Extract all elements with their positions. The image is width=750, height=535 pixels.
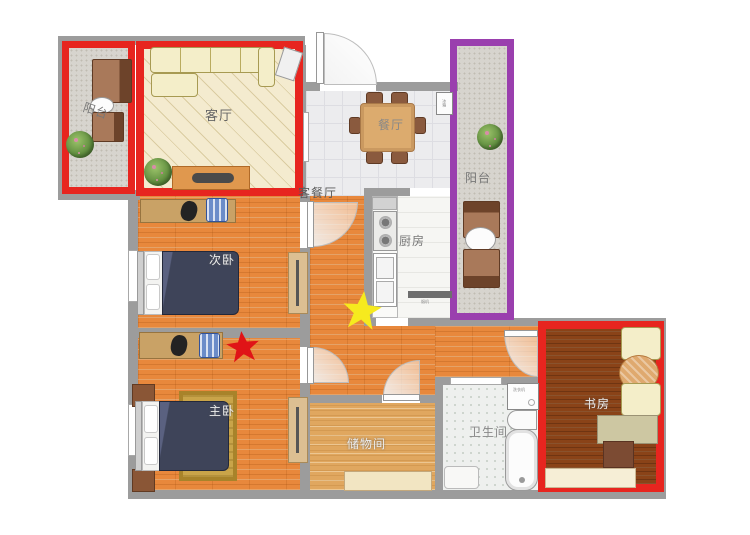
plant	[66, 131, 94, 158]
study-chair	[603, 441, 634, 468]
door-leaf	[307, 347, 314, 384]
armchair	[621, 383, 661, 416]
plant	[144, 158, 172, 186]
burner	[379, 234, 392, 247]
kitchen-opening	[376, 318, 408, 326]
window	[303, 112, 309, 162]
sink-basin	[376, 281, 394, 303]
wall	[376, 82, 458, 91]
dining-chair	[414, 117, 426, 134]
bathroom-label: 卫生间	[469, 423, 508, 440]
storage-cabinet	[344, 471, 432, 491]
kitchen-opening	[410, 188, 452, 196]
bathtub-drain	[519, 477, 525, 483]
blue-chair	[206, 198, 228, 222]
master-bedroom-label: 主卧	[209, 402, 235, 419]
nightstand	[132, 469, 155, 492]
wall	[300, 395, 443, 403]
study-cabinet	[545, 468, 636, 488]
pillow	[146, 254, 160, 280]
sofa-chaise	[151, 73, 198, 97]
balcony-right-label: 阳台	[465, 169, 491, 186]
sofa	[150, 47, 274, 73]
bathroom-sink	[507, 410, 537, 430]
dining-chair	[391, 151, 408, 164]
blue-chair	[199, 333, 220, 358]
entry-door-leaf	[316, 32, 324, 84]
kitchen-label: 厨房	[399, 232, 425, 249]
range-hood-label: 烟机	[421, 301, 429, 305]
fridge: 冰箱	[436, 92, 453, 115]
dining-room-label: 餐厅	[378, 116, 404, 133]
pillow	[146, 284, 160, 310]
balcony-chair	[463, 249, 500, 288]
floor-plan: 阳台 客厅 餐厅 冰箱 阳台 烟机 厨房 次卧	[0, 0, 750, 535]
wardrobe-handle	[296, 407, 299, 453]
living-dining-label: 客餐厅	[298, 184, 337, 201]
toilet	[444, 466, 479, 489]
tv	[192, 173, 234, 183]
bathroom-sliding-door	[450, 377, 502, 385]
study-label: 书房	[584, 395, 610, 412]
bed-headboard	[137, 251, 144, 315]
sink-basin	[376, 257, 394, 279]
range-hood	[372, 197, 397, 210]
dining-chair	[366, 151, 383, 164]
washer-label: 洗衣机	[513, 389, 529, 393]
wardrobe-handle	[296, 260, 299, 306]
second-bedroom-label: 次卧	[209, 251, 235, 268]
door-leaf	[307, 201, 314, 248]
entry-door-arc	[324, 33, 377, 85]
washing-machine: 洗衣机	[507, 383, 539, 410]
study-desk	[597, 415, 658, 444]
kitchen-shelf	[408, 291, 452, 298]
pillow	[144, 405, 158, 433]
storage-label: 储物间	[347, 435, 386, 452]
burner	[379, 216, 392, 229]
living-room-label: 客厅	[205, 105, 233, 124]
plant	[477, 124, 503, 150]
wall	[435, 377, 443, 490]
pillow	[144, 437, 158, 465]
fridge-label: 冰箱	[442, 99, 446, 107]
door-leaf	[504, 330, 538, 337]
bed-headboard	[135, 401, 142, 471]
sofa-armrest	[258, 47, 275, 87]
door-leaf	[383, 394, 420, 401]
